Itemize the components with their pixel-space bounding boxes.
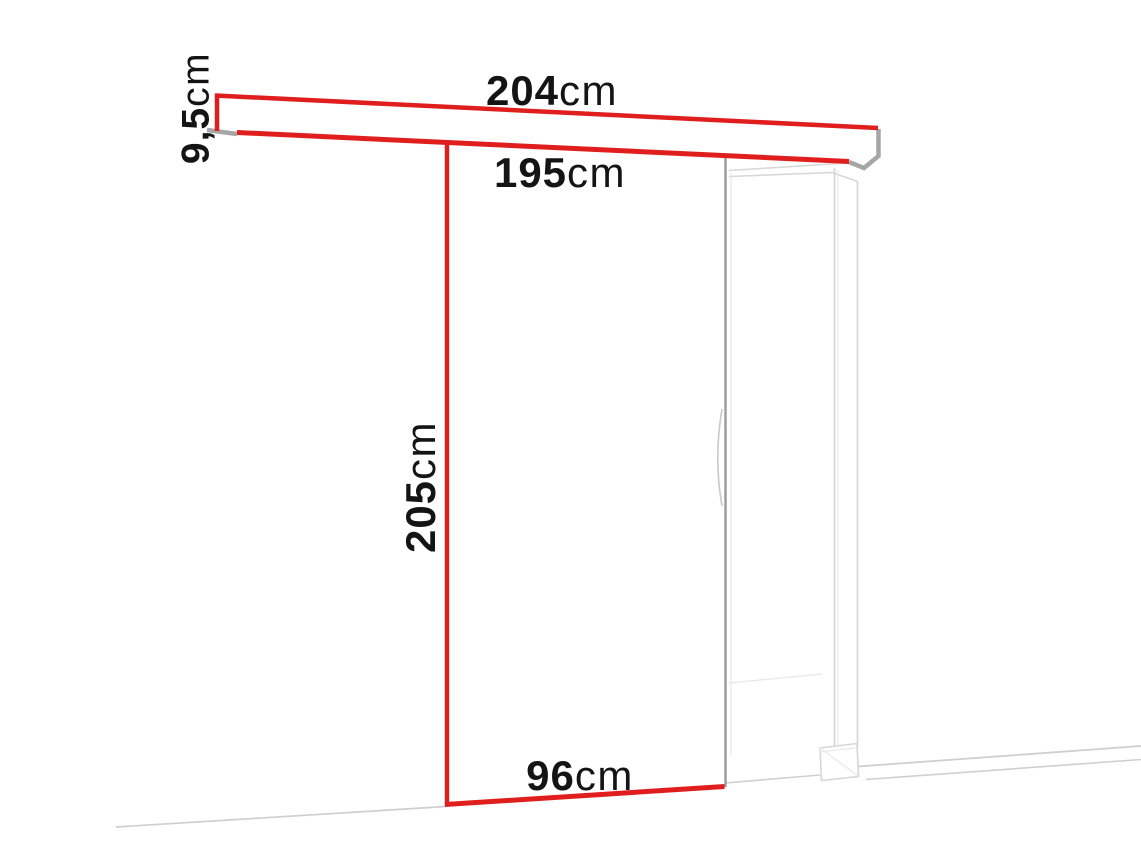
door-frame	[729, 163, 859, 781]
dimension-unit: cm	[397, 421, 444, 480]
floor-line-left	[116, 807, 446, 828]
rail-right-end-cap	[849, 129, 879, 168]
floor-line-behind-door	[725, 775, 820, 783]
dimension-value: 96	[526, 752, 575, 799]
dimension-label-track-width: 204cm	[486, 70, 618, 112]
dimension-unit: cm	[575, 752, 634, 799]
dimension-unit: cm	[175, 52, 218, 107]
dimension-label-track-height: 9,5cm	[177, 52, 216, 164]
baseboard-top-line	[858, 746, 1141, 767]
dimension-unit: cm	[559, 67, 618, 114]
dimension-value: 204	[486, 67, 559, 114]
dimension-label-door-width: 96cm	[526, 755, 634, 797]
dimension-unit: cm	[567, 149, 626, 196]
dimension-value: 9,5	[175, 107, 218, 164]
dimension-label-door-height: 205cm	[400, 421, 442, 553]
frame-base-plinth	[820, 744, 859, 781]
dimension-value: 205	[397, 480, 444, 553]
dimension-label-passage-width: 195cm	[494, 152, 626, 194]
door-panel	[445, 142, 726, 807]
sliding-door-dimension-diagram: 204cm 195cm 9,5cm 205cm 96cm	[0, 0, 1141, 855]
dimension-value: 195	[494, 149, 567, 196]
frame-lower-perspective-line	[729, 674, 822, 683]
door-handle-groove	[718, 409, 722, 506]
diagram-line-art	[0, 0, 1141, 855]
frame-top-inner-line	[729, 163, 848, 171]
